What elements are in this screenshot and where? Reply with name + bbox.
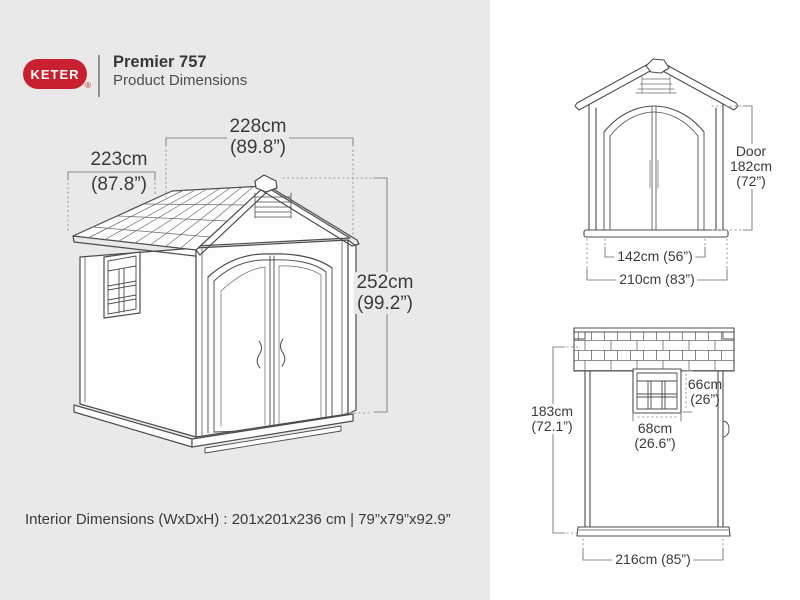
product-name: Premier 757 (113, 53, 207, 72)
dim-side-height-cm: 183cm (531, 404, 573, 419)
shed-3d-drawing (73, 175, 359, 453)
interior-dimensions-note: Interior Dimensions (WxDxH) : 201x201x23… (25, 511, 451, 528)
dim-side-height: 183cm (72.1”) (528, 404, 576, 434)
front-gable-vent (636, 76, 676, 93)
front-view-drawing (575, 59, 738, 237)
front-base (584, 230, 728, 237)
front-view-doors (604, 106, 704, 230)
keter-logo: KETER (23, 59, 87, 89)
front-apex-cap (646, 59, 669, 73)
side-window (633, 369, 681, 413)
dim-window-width-cm: 68cm (634, 421, 675, 436)
dim-overall-width: 210cm (83”) (616, 272, 697, 287)
dim-window-width: 68cm (26.6”) (631, 421, 678, 451)
side-base (577, 527, 730, 536)
dim-depth-in: (87.8”) (88, 174, 150, 195)
dim-height: 252cm (99.2”) (353, 272, 416, 314)
dim-height-in: (99.2”) (356, 293, 413, 314)
dim-window-height: 66cm (26”) (685, 377, 725, 407)
dim-window-height-cm: 66cm (688, 377, 722, 392)
dim-window-width-in: (26.6”) (634, 436, 675, 451)
side-window (104, 252, 140, 318)
dimension-sheet: KETER ® Premier 757 Product Dimensions 2… (0, 0, 800, 600)
side-roof-shingles (574, 332, 734, 371)
dim-door-height-in: (72”) (730, 174, 772, 189)
dim-width-in: (89.8”) (227, 137, 289, 158)
dim-door-height: Door 182cm (72”) (727, 144, 775, 189)
front-door-handles (650, 160, 658, 188)
dim-overall-depth: 216cm (85”) (612, 552, 693, 567)
side-latch (723, 421, 729, 437)
dim-width-cm: 228cm (226, 116, 289, 137)
dim-depth-cm: 223cm (87, 149, 150, 170)
registered-trademark: ® (85, 81, 91, 90)
door-word: Door (730, 144, 772, 159)
dim-side-height-in: (72.1”) (531, 419, 573, 434)
dim-window-height-in: (26”) (688, 392, 722, 407)
header-divider (98, 55, 100, 97)
dim-door-width: 142cm (56”) (614, 249, 695, 264)
roof-apex-cap (255, 175, 277, 192)
page-subtitle: Product Dimensions (113, 72, 247, 89)
dim-height-cm: 252cm (356, 272, 413, 293)
dim-door-height-cm: 182cm (730, 159, 772, 174)
